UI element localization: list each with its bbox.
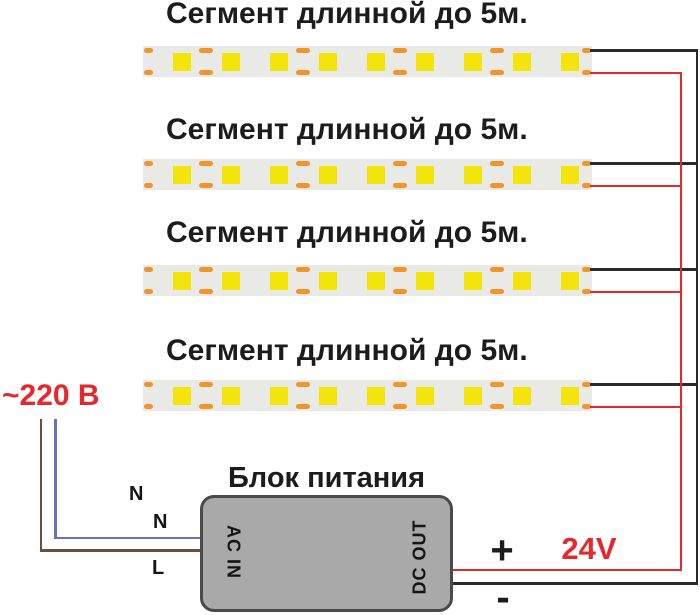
solder-pad xyxy=(296,70,310,75)
line-label: L xyxy=(152,555,164,581)
led-chip xyxy=(367,272,385,290)
segment-positive-wire xyxy=(590,72,682,75)
led-chip xyxy=(464,166,482,184)
solder-pad xyxy=(393,382,407,387)
led-chip xyxy=(173,53,191,71)
solder-pad xyxy=(490,48,504,53)
segment-title: Сегмент длинной до 5м. xyxy=(166,0,528,32)
segment-negative-wire xyxy=(590,49,698,52)
led-strip xyxy=(143,46,592,77)
solder-pad xyxy=(490,183,504,188)
solder-pad xyxy=(490,289,504,294)
solder-pad xyxy=(490,161,504,166)
solder-pad xyxy=(490,382,504,387)
led-chip xyxy=(464,387,482,405)
solder-pad xyxy=(144,70,153,75)
line-wire-horizontal xyxy=(40,549,202,552)
segment-title: Сегмент длинной до 5м. xyxy=(166,215,528,251)
segment-title: Сегмент длинной до 5м. xyxy=(166,333,528,369)
plus-terminal-label: + xyxy=(490,529,513,574)
segment-positive-wire xyxy=(590,406,682,409)
led-chip xyxy=(173,272,191,290)
solder-pad xyxy=(144,289,153,294)
solder-pad xyxy=(199,267,213,272)
led-chip xyxy=(416,387,434,405)
negative-bus-wire-vertical xyxy=(696,49,699,585)
negative-wire-to-psu xyxy=(453,582,698,585)
dc-out-label: DC OUT xyxy=(410,520,431,595)
led-chip xyxy=(513,272,531,290)
solder-pad xyxy=(393,70,407,75)
led-chip xyxy=(513,387,531,405)
solder-pad xyxy=(296,382,310,387)
solder-pad xyxy=(393,404,407,409)
led-strip xyxy=(143,159,592,190)
solder-pad xyxy=(199,404,213,409)
led-chip xyxy=(222,53,240,71)
led-chip xyxy=(222,166,240,184)
neutral-wire-vertical xyxy=(54,419,57,539)
solder-pad xyxy=(144,161,153,166)
led-chip xyxy=(416,272,434,290)
solder-pad xyxy=(144,267,153,272)
solder-pad xyxy=(490,267,504,272)
led-chip xyxy=(416,53,434,71)
positive-bus-wire-vertical xyxy=(680,72,683,572)
led-chip xyxy=(319,387,337,405)
solder-pad xyxy=(296,48,310,53)
led-chip xyxy=(270,53,288,71)
led-chip xyxy=(367,387,385,405)
solder-pad xyxy=(199,183,213,188)
segment-title: Сегмент длинной до 5м. xyxy=(166,112,528,148)
solder-pad xyxy=(296,161,310,166)
solder-pad xyxy=(296,183,310,188)
line-wire-vertical xyxy=(40,419,43,552)
led-chip xyxy=(367,166,385,184)
solder-pad xyxy=(490,70,504,75)
neutral-wire-horizontal xyxy=(54,537,201,540)
led-chip xyxy=(416,166,434,184)
neutral-label-2: N xyxy=(153,509,167,535)
led-strip xyxy=(143,265,592,296)
ac-in-label: AC IN xyxy=(223,525,244,579)
solder-pad xyxy=(199,161,213,166)
led-chip xyxy=(464,53,482,71)
solder-pad xyxy=(144,382,153,387)
solder-pad xyxy=(296,404,310,409)
led-chip xyxy=(561,387,579,405)
led-strip-wiring-diagram: Сегмент длинной до 5м.Сегмент длинной до… xyxy=(0,0,700,615)
neutral-label-1: N xyxy=(129,481,143,507)
led-chip xyxy=(561,53,579,71)
mains-voltage-label: ~220 В xyxy=(2,379,100,413)
solder-pad xyxy=(393,289,407,294)
solder-pad xyxy=(199,382,213,387)
power-supply-title: Блок питания xyxy=(200,461,453,495)
solder-pad xyxy=(490,404,504,409)
segment-positive-wire xyxy=(590,291,682,294)
solder-pad xyxy=(144,404,153,409)
led-chip xyxy=(513,166,531,184)
led-chip xyxy=(270,272,288,290)
solder-pad xyxy=(296,289,310,294)
led-chip xyxy=(561,166,579,184)
solder-pad xyxy=(393,183,407,188)
led-chip xyxy=(173,387,191,405)
minus-terminal-label: - xyxy=(496,576,509,615)
led-chip xyxy=(513,53,531,71)
led-chip xyxy=(319,166,337,184)
led-chip xyxy=(319,53,337,71)
led-chip xyxy=(319,272,337,290)
solder-pad xyxy=(199,289,213,294)
led-chip xyxy=(561,272,579,290)
led-chip xyxy=(222,272,240,290)
segment-positive-wire xyxy=(590,185,682,188)
solder-pad xyxy=(144,183,153,188)
led-chip xyxy=(270,166,288,184)
led-chip xyxy=(270,387,288,405)
led-chip xyxy=(222,387,240,405)
solder-pad xyxy=(296,267,310,272)
led-chip xyxy=(464,272,482,290)
solder-pad xyxy=(144,48,153,53)
led-chip xyxy=(367,53,385,71)
solder-pad xyxy=(199,48,213,53)
solder-pad xyxy=(199,70,213,75)
led-strip xyxy=(143,380,592,411)
output-voltage-label: 24V xyxy=(561,531,616,567)
led-chip xyxy=(173,166,191,184)
solder-pad xyxy=(393,161,407,166)
solder-pad xyxy=(393,48,407,53)
solder-pad xyxy=(393,267,407,272)
positive-wire-to-psu xyxy=(453,569,682,572)
